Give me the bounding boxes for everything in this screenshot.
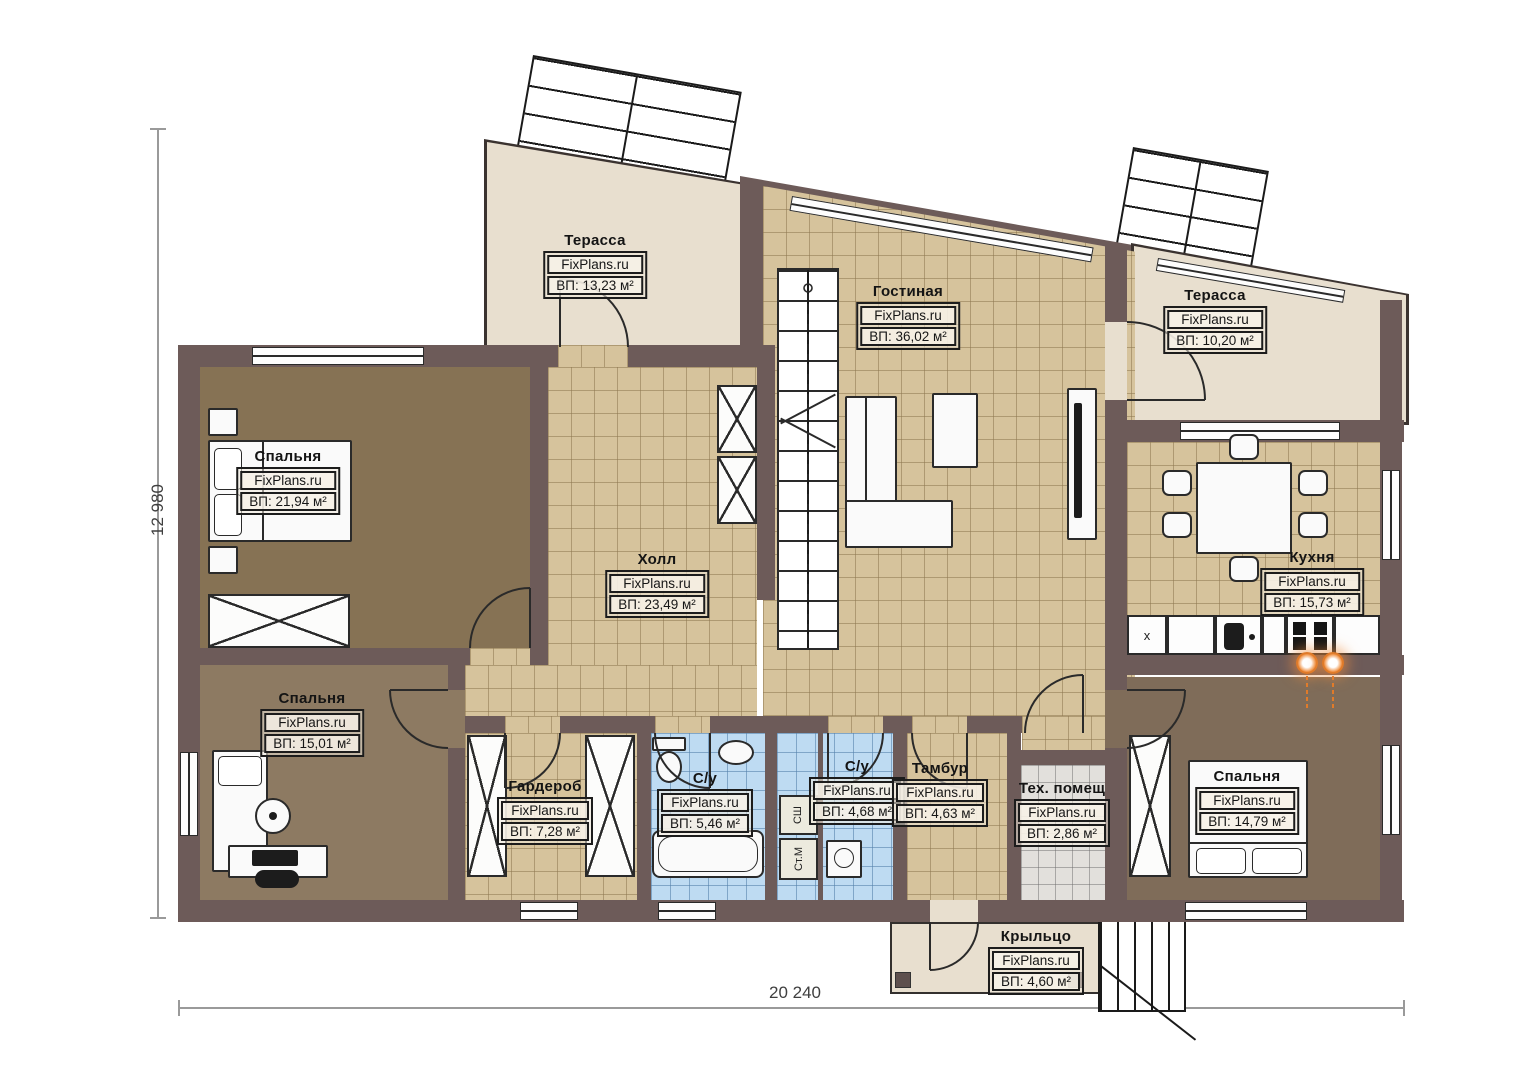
room-name-label: Холл <box>638 551 677 568</box>
room-label-tambour: Тамбур FixPlans.ru ВП: 4,63 м² <box>892 760 988 827</box>
window-bedroom2-left <box>180 752 198 836</box>
porch-steps <box>1098 918 1186 1012</box>
coffee-table <box>932 393 978 468</box>
door-gap-wardrobe <box>505 716 560 733</box>
room-area-label: ВП: 36,02 м² <box>860 327 956 346</box>
wall-hall-living <box>757 345 775 600</box>
chair <box>1162 512 1192 538</box>
room-name-label: Спальня <box>279 690 346 707</box>
window-bedroom3-right <box>1382 745 1400 835</box>
room-name-label: Гардероб <box>508 778 581 795</box>
stairs <box>777 268 839 650</box>
watermark-label: FixPlans.ru <box>860 306 956 325</box>
dimension-label-vertical: 12 980 <box>148 470 168 550</box>
chair <box>1229 434 1259 460</box>
room-name-label: Спальня <box>255 448 322 465</box>
door-gap-terrace-right <box>1105 322 1127 400</box>
room-name-label: Крыльцо <box>1001 928 1071 945</box>
watermark-label: FixPlans.ru <box>264 713 360 732</box>
watermark-label: FixPlans.ru <box>501 801 589 820</box>
room-name-label: С/у <box>693 770 717 787</box>
wardrobe-closet <box>1129 735 1171 877</box>
pillow <box>1252 848 1302 874</box>
tv-unit <box>1067 388 1097 540</box>
wall-wardrobe-bath1 <box>637 733 651 900</box>
laptop-icon <box>252 850 298 866</box>
room-name-label: Терасса <box>1184 287 1246 304</box>
kitchen-sink <box>1215 615 1262 655</box>
kitchen-counter <box>1334 615 1380 655</box>
floor-plan-canvas: x СШ Ст.М <box>0 0 1528 1080</box>
room-area-label: ВП: 4,63 м² <box>896 804 984 823</box>
watermark-label: FixPlans.ru <box>547 255 643 274</box>
room-name-label: Тамбур <box>912 760 968 777</box>
watermark-label: FixPlans.ru <box>1018 803 1106 822</box>
toilet-icon <box>652 737 686 751</box>
dining-table <box>1196 462 1292 554</box>
room-area-label: ВП: 15,73 м² <box>1264 593 1360 612</box>
nightstand <box>208 546 238 574</box>
door-gap-terrace-left <box>558 345 628 367</box>
washbasin-icon <box>718 740 754 765</box>
chair <box>1298 512 1328 538</box>
wall-bath1-closets <box>765 733 777 900</box>
blanket-line <box>1190 842 1306 844</box>
watermark-label: FixPlans.ru <box>1167 310 1263 329</box>
dimension-tick <box>1403 1000 1405 1016</box>
room-label-bathroom-2: С/у FixPlans.ru ВП: 4,68 м² <box>809 758 905 825</box>
room-label-porch: Крыльцо FixPlans.ru ВП: 4,60 м² <box>988 928 1084 995</box>
kitchen-counter <box>1167 615 1215 655</box>
chair <box>1229 556 1259 582</box>
room-area-label: ВП: 14,79 м² <box>1199 812 1295 831</box>
wardrobe-closet <box>208 594 350 648</box>
room-name-label: Гостиная <box>873 283 943 300</box>
watermark-label: FixPlans.ru <box>813 781 901 800</box>
bar-stool <box>1322 652 1344 674</box>
bar-stool <box>1296 652 1318 674</box>
pillow <box>218 756 262 786</box>
room-label-hall: Холл FixPlans.ru ВП: 23,49 м² <box>605 551 709 618</box>
room-area-label: ВП: 10,20 м² <box>1167 331 1263 350</box>
wall-bedroom1-right <box>530 345 548 665</box>
room-area-label: ВП: 4,68 м² <box>813 802 901 821</box>
wall-bedroom3-top <box>1127 655 1404 675</box>
dimension-tick <box>150 128 166 130</box>
room-name-label: Спальня <box>1214 768 1281 785</box>
door-gap-bedroom1 <box>470 648 530 665</box>
hall-corridor-floor <box>465 665 757 716</box>
door-gap-bedroom2 <box>448 690 465 748</box>
room-area-label: ВП: 15,01 м² <box>264 734 360 753</box>
dimension-line-horizontal <box>178 1007 1404 1009</box>
dimension-tick <box>178 1000 180 1016</box>
watermark-label: FixPlans.ru <box>661 793 749 812</box>
window-wardrobe-bottom <box>520 902 578 920</box>
room-area-label: ВП: 4,60 м² <box>992 972 1080 991</box>
nightstand <box>208 408 238 436</box>
wardrobe-closet <box>717 456 757 524</box>
room-area-label: ВП: 21,94 м² <box>240 492 336 511</box>
closet-stm: Ст.М <box>779 838 818 880</box>
room-label-living-room: Гостиная FixPlans.ru ВП: 36,02 м² <box>856 283 960 350</box>
door-gap-porch <box>930 900 978 922</box>
watermark-label: FixPlans.ru <box>240 471 336 490</box>
desk-chair <box>255 870 299 888</box>
room-label-wardrobe: Гардероб FixPlans.ru ВП: 7,28 м² <box>497 778 593 845</box>
room-label-tech-room: Тех. помещ FixPlans.ru ВП: 2,86 м² <box>1014 780 1110 847</box>
door-gap-tambour <box>912 716 967 733</box>
room-area-label: ВП: 5,46 м² <box>661 814 749 833</box>
window-bedroom1-top <box>252 347 424 365</box>
room-label-bedroom-3: Спальня FixPlans.ru ВП: 14,79 м² <box>1195 768 1299 835</box>
door-gap-bedroom3 <box>1105 690 1127 748</box>
room-name-label: Тех. помещ <box>1019 780 1105 797</box>
porch-post <box>895 972 911 988</box>
sofa-chaise <box>845 500 953 548</box>
washing-machine-door <box>834 848 854 868</box>
faucet-icon <box>1249 634 1255 640</box>
closet-stm-label: Ст.М <box>792 847 804 871</box>
door-gap-bath2 <box>828 716 883 733</box>
room-name-label: Кухня <box>1289 549 1334 566</box>
room-area-label: ВП: 2,86 м² <box>1018 824 1106 843</box>
room-label-terrace-left: Терасса FixPlans.ru ВП: 13,23 м² <box>543 232 647 299</box>
window-bath1-bottom <box>658 902 716 920</box>
stove-icon <box>1286 615 1334 655</box>
dimension-label-horizontal: 20 240 <box>750 983 840 1003</box>
door-gap-bath1 <box>655 716 710 733</box>
room-label-terrace-right: Терасса FixPlans.ru ВП: 10,20 м² <box>1163 287 1267 354</box>
kitchen-cabinet-label: x <box>1144 628 1151 643</box>
chair <box>1162 470 1192 496</box>
dimension-tick <box>150 917 166 919</box>
room-label-kitchen: Кухня FixPlans.ru ВП: 15,73 м² <box>1260 549 1364 616</box>
closet-sh-label: СШ <box>793 806 805 824</box>
window-kitchen-top <box>1180 422 1340 440</box>
window-bedroom3-bottom <box>1185 902 1307 920</box>
room-label-bedroom-2: Спальня FixPlans.ru ВП: 15,01 м² <box>260 690 364 757</box>
room-name-label: Терасса <box>564 232 626 249</box>
watermark-label: FixPlans.ru <box>1264 572 1360 591</box>
window-kitchen-right <box>1382 470 1400 560</box>
kitchen-counter <box>1262 615 1286 655</box>
kitchen-cabinet: x <box>1127 615 1167 655</box>
watermark-label: FixPlans.ru <box>992 951 1080 970</box>
pillow <box>1196 848 1246 874</box>
bathtub-inner <box>658 836 758 872</box>
room-label-bedroom-1: Спальня FixPlans.ru ВП: 21,94 м² <box>236 448 340 515</box>
wall-tech-top <box>1021 750 1105 765</box>
watermark-label: FixPlans.ru <box>609 574 705 593</box>
watermark-label: FixPlans.ru <box>1199 791 1295 810</box>
sink-icon <box>1224 623 1244 650</box>
room-area-label: ВП: 7,28 м² <box>501 822 589 841</box>
kitchen-corridor-floor <box>1022 716 1105 750</box>
room-area-label: ВП: 13,23 м² <box>547 276 643 295</box>
chair <box>1298 470 1328 496</box>
room-name-label: С/у <box>845 758 869 775</box>
wardrobe-closet <box>717 385 757 453</box>
watermark-label: FixPlans.ru <box>896 783 984 802</box>
room-area-label: ВП: 23,49 м² <box>609 595 705 614</box>
pot-lid-knob <box>269 812 277 820</box>
room-label-bathroom-1: С/у FixPlans.ru ВП: 5,46 м² <box>657 770 753 837</box>
tv-icon <box>1074 403 1082 518</box>
